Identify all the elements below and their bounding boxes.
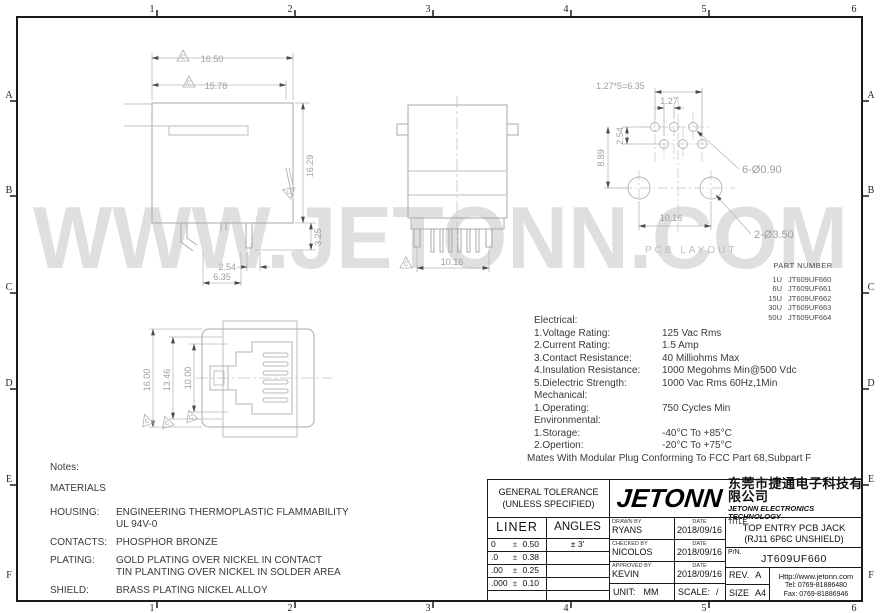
spec-label: 1.Operating: [527, 403, 662, 416]
tolerance-row: .000±0.10 [488, 577, 546, 590]
spec-label: 1.Voltage Rating: [527, 328, 662, 341]
spec-value: 40 Milliohms Max [662, 353, 739, 366]
spec-value: -20°C To +75°C [662, 440, 732, 453]
hole-callout-large: 2-Ø3.50 [754, 229, 794, 241]
ruler-row: A [5, 90, 13, 101]
spec-row: 1.Storage:-40°C To +85°C [527, 428, 872, 441]
drawing-title-cell: TITLE. TOP ENTRY PCB JACK (RJ11 6P6C UNS… [725, 517, 863, 547]
material-item: HOUSING: ENGINEERING THERMOPLASTIC FLAMM… [50, 507, 470, 531]
ruler-col: 3 [426, 603, 431, 613]
ruler-col: 2 [288, 4, 293, 15]
spec-value: -40°C To +85°C [662, 428, 732, 441]
dim-label: 10.16 [441, 257, 464, 267]
company-website: Http://www.jetonn.com [769, 572, 863, 581]
company-fax: Fax: 0769-81886946 [769, 590, 863, 599]
part-qty: 1U [760, 275, 782, 285]
tolerance-row: 0±0.50 [488, 538, 546, 551]
specifications: Electrical: 1.Voltage Rating:125 Vac Rms… [527, 315, 872, 453]
face-view-contacts [263, 353, 288, 402]
spec-label: 2.Current Rating: [527, 340, 662, 353]
approved-by-cell: APPROVED BYKEVIN [609, 561, 674, 583]
spec-value: 750 Cycles Min [662, 403, 730, 416]
spec-row: 4.Insulation Resistance:1000 Megohms Min… [527, 365, 872, 378]
ruler-row: A [867, 90, 875, 101]
part-no-value: JT609UF660 [725, 547, 863, 565]
material-value: ENGINEERING THERMOPLASTIC FLAMMABILITYUL… [116, 507, 349, 531]
spec-label: 2.Opertion: [527, 440, 662, 453]
ruler-col: 2 [288, 603, 293, 613]
face-view [196, 321, 332, 437]
spec-value: 125 Vac Rms [662, 328, 721, 341]
spec-label: 3.Contact Resistance: [527, 353, 662, 366]
face-view-dim-labels: 16.00 13.46 10.00 [142, 367, 193, 392]
part-pn: JT609UF662 [788, 294, 831, 304]
hole-callout-small: 6-Ø0.90 [742, 164, 782, 176]
spec-row: 2.Opertion:-20°C To +75°C [527, 440, 872, 453]
tolerance-row: .00±0.25 [488, 564, 546, 577]
dim-label: 8.89 [596, 149, 606, 167]
ruler-row: B [6, 185, 13, 196]
material-label: PLATING: [50, 555, 116, 579]
front-view-ear-left [397, 124, 408, 135]
dim-label: 10.00 [183, 367, 193, 390]
ruler-col: 6 [852, 4, 857, 15]
company-banner: JETONN 东莞市捷通电子科技有限公司 JETONN ELECTRONICS … [609, 480, 863, 517]
spec-row: 1.Operating:750 Cycles Min [527, 403, 872, 416]
dim-label: 10.16 [660, 213, 683, 223]
part-qty: 15U [760, 294, 782, 304]
ruler-col: 4 [564, 4, 569, 15]
company-tel: Tel: 0769-81886480 [769, 581, 863, 590]
mating-note: Mates With Modular Plug Conforming To FC… [527, 453, 811, 464]
ruler-col: 5 [702, 603, 707, 613]
part-qty: 6U [760, 284, 782, 294]
part-pn: JT609UF663 [788, 303, 831, 313]
rev-flag-letter: C [181, 55, 186, 61]
spec-label: 4.Insulation Resistance: [527, 365, 662, 378]
notes-block: Notes: MATERIALS HOUSING: ENGINEERING TH… [50, 462, 470, 603]
ruler-row: D [5, 378, 12, 389]
material-value: BRASS PLATING NICKEL ALLOY [116, 585, 268, 597]
dim-label: 1.27 [660, 96, 678, 106]
spec-label: 5.Dielectric Strength: [527, 378, 662, 391]
part-number-row: 1U JT609UF660 [744, 275, 862, 285]
unit-cell: UNIT:MM [609, 583, 674, 601]
part-number-row: 6U JT609UF661 [744, 284, 862, 294]
materials-title: MATERIALS [50, 483, 470, 495]
drawing-sheet: WWW.JETONN.COM 1 2 3 4 5 6 1 2 3 4 5 6 A… [0, 0, 880, 613]
ruler-col: 3 [426, 4, 431, 15]
size-cell: SIZEA4 [725, 584, 769, 602]
ruler-col: 1 [150, 603, 155, 613]
spec-value: 1000 Vac Rms 60Hz,1Min [662, 378, 777, 391]
material-item: SHIELD: BRASS PLATING NICKEL ALLOY [50, 585, 470, 597]
material-item: PLATING: GOLD PLATING OVER NICKEL IN CON… [50, 555, 470, 579]
checked-by-cell: CHECKED BYNICOLOS [609, 539, 674, 561]
part-pn: JT609UF661 [788, 284, 831, 294]
tolerance-row: .0±0.38 [488, 551, 546, 564]
contact-cell: Http://www.jetonn.com Tel: 0769-81886480… [769, 567, 863, 602]
face-view-slab [223, 321, 297, 437]
material-value: GOLD PLATING OVER NICKEL IN CONTACTTIN P… [116, 555, 341, 579]
dim-label: 16.50 [201, 54, 224, 64]
part-qty: 30U [760, 303, 782, 313]
dim-label: 3.25 [313, 228, 323, 246]
ruler-row: E [6, 474, 12, 485]
jetonn-logo: JETONN [615, 483, 723, 514]
dim-label: 16.29 [305, 155, 315, 178]
ruler-row: C [6, 282, 13, 293]
part-number-table: PART NUMBER 1U JT609UF660 6U JT609UF661 … [744, 261, 862, 323]
spec-label: 1.Storage: [527, 428, 662, 441]
dim-label: 16.00 [142, 369, 152, 392]
tolerance-subtitle: (UNLESS SPECIFIED) [488, 498, 609, 510]
tolerance-header: GENERAL TOLERANCE (UNLESS SPECIFIED) [488, 480, 609, 517]
drawing-subtitle: (RJ11 6P6C UNSHIELD) [725, 534, 863, 544]
front-view-ear-right [507, 124, 518, 135]
part-number-row: 15U JT609UF662 [744, 294, 862, 304]
dim-label: 2.54 [615, 127, 625, 145]
pcb-layout-title: PCB LAYOUT [645, 245, 738, 256]
spec-row: 5.Dielectric Strength:1000 Vac Rms 60Hz,… [527, 378, 872, 391]
side-view-slot [169, 126, 248, 135]
approved-date-cell: DATE2018/09/16 [674, 561, 725, 583]
ruler-row: E [868, 474, 874, 485]
checked-date-cell: DATE2018/09/16 [674, 539, 725, 561]
material-item: CONTACTS: PHOSPHOR BRONZE [50, 537, 470, 549]
notes-title: Notes: [50, 462, 470, 474]
liner-header: LINER [488, 517, 546, 538]
spec-row: 1.Voltage Rating:125 Vac Rms [527, 328, 872, 341]
ruler-col: 6 [852, 603, 857, 613]
spec-row: 3.Contact Resistance:40 Milliohms Max [527, 353, 872, 366]
spec-section-title: Mechanical: [527, 390, 662, 403]
rev-cell: REV.A [725, 567, 769, 584]
spec-value: 1.5 Amp [662, 340, 699, 353]
tolerance-title: GENERAL TOLERANCE [488, 486, 609, 498]
part-number-row: 30U JT609UF663 [744, 303, 862, 313]
material-label: SHIELD: [50, 585, 116, 597]
spec-row: 2.Current Rating:1.5 Amp [527, 340, 872, 353]
angles-header: ANGLES [546, 517, 609, 538]
dim-label: 13.46 [162, 369, 172, 392]
rev-flag-letter: C [404, 262, 409, 268]
ruler-row: B [868, 185, 875, 196]
angles-value: ± 3' [546, 538, 609, 551]
spec-section-title: Electrical: [527, 315, 662, 328]
ruler-row: F [868, 570, 874, 581]
ruler-row: F [6, 570, 12, 581]
part-pn: JT609UF660 [788, 275, 831, 285]
ruler-row: C [868, 282, 875, 293]
material-value: PHOSPHOR BRONZE [116, 537, 218, 549]
spec-section-title: Environmental: [527, 415, 662, 428]
scale-cell: SCALE:/ [674, 583, 725, 601]
part-number-title: PART NUMBER [744, 261, 862, 271]
material-label: CONTACTS: [50, 537, 116, 549]
company-name-cn: 东莞市捷通电子科技有限公司 [728, 477, 863, 503]
spec-value: 1000 Megohms Min@500 Vdc [662, 365, 797, 378]
drawn-date-cell: DATE2018/09/16 [674, 517, 725, 539]
part-no-cell: P/N. JT609UF660 [725, 547, 863, 567]
ruler-col: 1 [150, 4, 155, 15]
dim-label: 6.35 [213, 272, 231, 282]
dim-label: 1.27*5=6.35 [596, 81, 645, 91]
ruler-col: 5 [702, 4, 707, 15]
title-block: GENERAL TOLERANCE (UNLESS SPECIFIED) LIN… [487, 479, 862, 601]
material-label: HOUSING: [50, 507, 116, 531]
dim-label: 15.78 [205, 81, 228, 91]
ruler-col: 4 [564, 603, 569, 613]
dim-label: 2.54 [218, 262, 236, 272]
drawn-by-cell: DRAWN BYRYANS [609, 517, 674, 539]
rev-flag-letter: C [187, 81, 192, 87]
